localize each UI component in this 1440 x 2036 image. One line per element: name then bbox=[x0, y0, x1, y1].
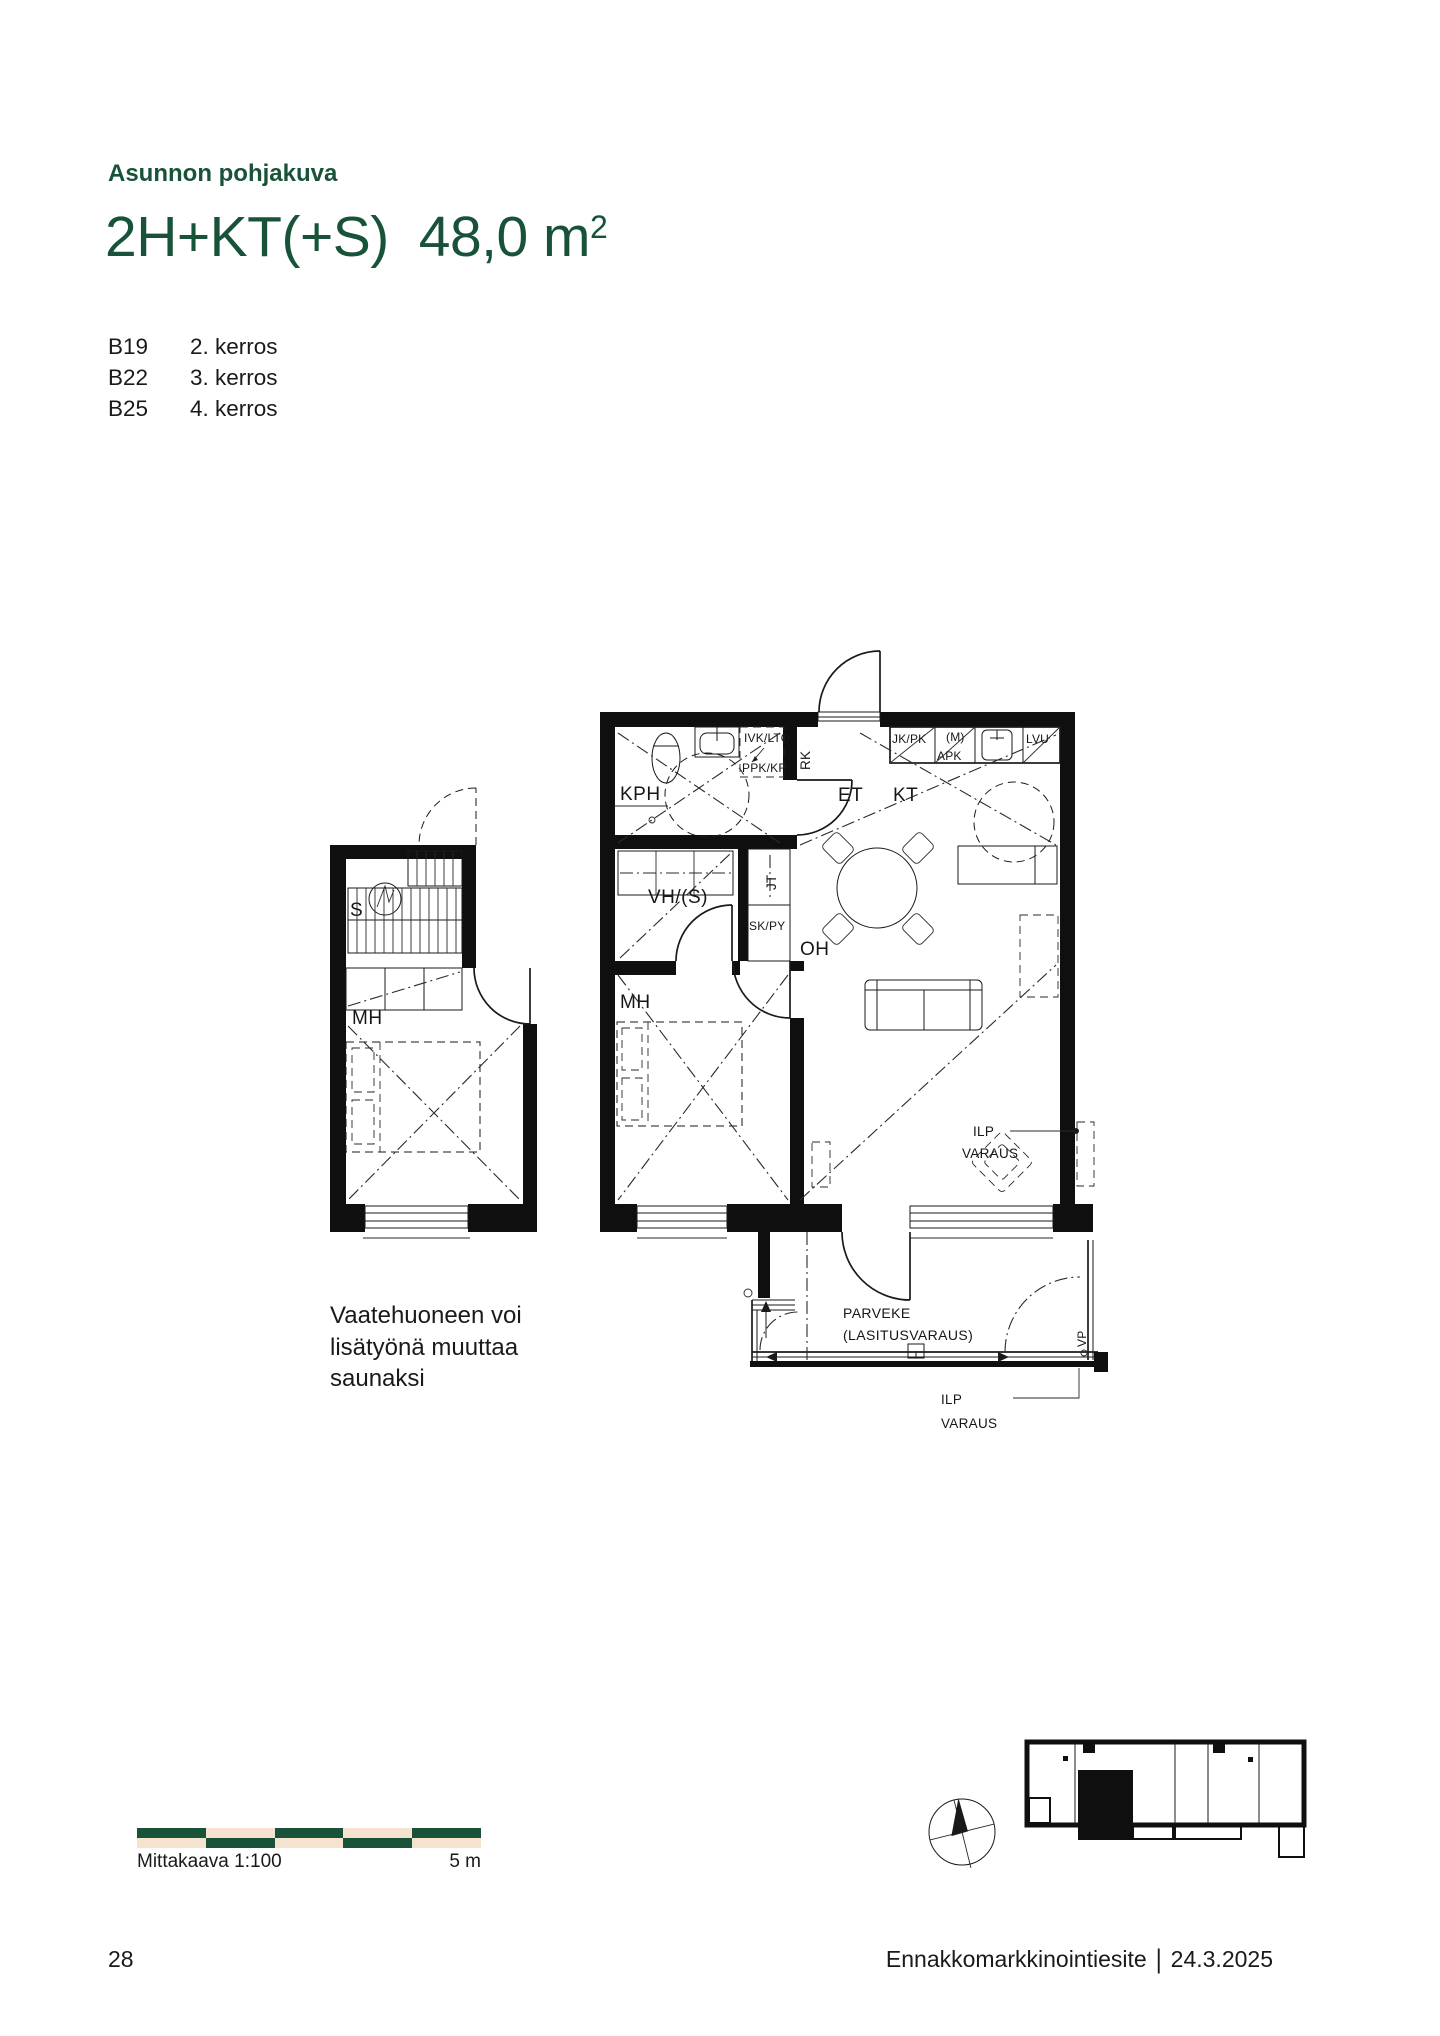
sauna-room: S bbox=[348, 851, 462, 953]
label-oh: OH bbox=[800, 939, 830, 960]
entrance-door bbox=[818, 651, 880, 721]
brochure-page: Asunnon pohjakuva 2H+KT(+S)48,0 m2 B192.… bbox=[0, 0, 1440, 2036]
highlighted-unit bbox=[1078, 1770, 1133, 1840]
label-ppk-kr: PPK/KR bbox=[742, 761, 787, 775]
label-ivk-lto: IVK/LTO bbox=[744, 731, 790, 745]
label-mh: MH bbox=[620, 992, 651, 1013]
label-lvu: LVU bbox=[1026, 732, 1049, 746]
variant-bedroom: MH bbox=[346, 1008, 520, 1200]
label-sk-py: SK/PY bbox=[749, 919, 785, 933]
kitchen-counter: JK/PK (M) APK LVU bbox=[890, 727, 1060, 763]
scale-max-label: 5 m bbox=[449, 1851, 481, 1873]
scale-bar bbox=[137, 1828, 481, 1848]
sauna-variant-detail: S bbox=[330, 788, 537, 1238]
floor-plan-drawing: IVK/LTO PPK/KR KPH RK bbox=[0, 0, 1440, 2036]
dining-set bbox=[821, 831, 935, 946]
label-microwave: (M) bbox=[946, 730, 965, 744]
label-jk-pk: JK/PK bbox=[892, 732, 926, 746]
label-kph: KPH bbox=[620, 784, 661, 805]
bedroom: MH bbox=[617, 975, 788, 1200]
compass-icon bbox=[922, 1792, 1003, 1876]
bedroom-door bbox=[733, 961, 790, 1018]
key-plan bbox=[1027, 1742, 1304, 1857]
footer-separator: | bbox=[1156, 1944, 1162, 1975]
scale-ratio-label: Mittakaava 1:100 bbox=[137, 1851, 282, 1873]
label-parveke: PARVEKE bbox=[843, 1305, 911, 1321]
armchair bbox=[971, 1131, 1033, 1193]
variant-window bbox=[363, 1206, 470, 1238]
label-varaus-below: VARAUS bbox=[941, 1416, 997, 1431]
label-apk: APK bbox=[937, 749, 962, 763]
label-vp: VP bbox=[1075, 1331, 1089, 1347]
label-vh-s: VH/(S) bbox=[648, 887, 708, 908]
page-number: 28 bbox=[108, 1946, 134, 1973]
scale-labels: Mittakaava 1:100 5 m bbox=[137, 1851, 481, 1873]
bedroom-window bbox=[637, 1206, 727, 1238]
label-varaus-room: VARAUS bbox=[962, 1146, 1018, 1161]
label-rk: RK bbox=[798, 751, 813, 770]
label-et: ET bbox=[838, 785, 863, 806]
label-mh-variant: MH bbox=[352, 1008, 383, 1029]
balcony: PARVEKE (LASITUSVARAUS) VP ILP VARAUS bbox=[744, 1232, 1108, 1431]
round-table-reservation bbox=[974, 782, 1054, 862]
footer-date: 24.3.2025 bbox=[1171, 1946, 1273, 1972]
main-apartment-plan: IVK/LTO PPK/KR KPH RK bbox=[600, 651, 1094, 1300]
closet-row bbox=[346, 968, 462, 1010]
label-lasitusvaraus: (LASITUSVARAUS) bbox=[843, 1327, 973, 1343]
label-ilp-below: ILP bbox=[941, 1392, 962, 1407]
livingroom-window bbox=[910, 1206, 1053, 1238]
bathroom: IVK/LTO PPK/KR KPH bbox=[600, 712, 852, 849]
living-room: OH ILP VARAUS bbox=[800, 915, 1094, 1200]
label-ilp-room: ILP bbox=[973, 1124, 994, 1139]
footer-document: Ennakkomarkkinointiesite bbox=[886, 1946, 1147, 1972]
kitchen-island bbox=[958, 846, 1057, 884]
walk-in-closet: VH/(S) JT SK/PY bbox=[600, 849, 790, 975]
footer-document-line: Ennakkomarkkinointiesite|24.3.2025 bbox=[886, 1946, 1273, 1973]
label-jt: JT bbox=[764, 874, 779, 890]
balcony-door bbox=[842, 1232, 910, 1300]
